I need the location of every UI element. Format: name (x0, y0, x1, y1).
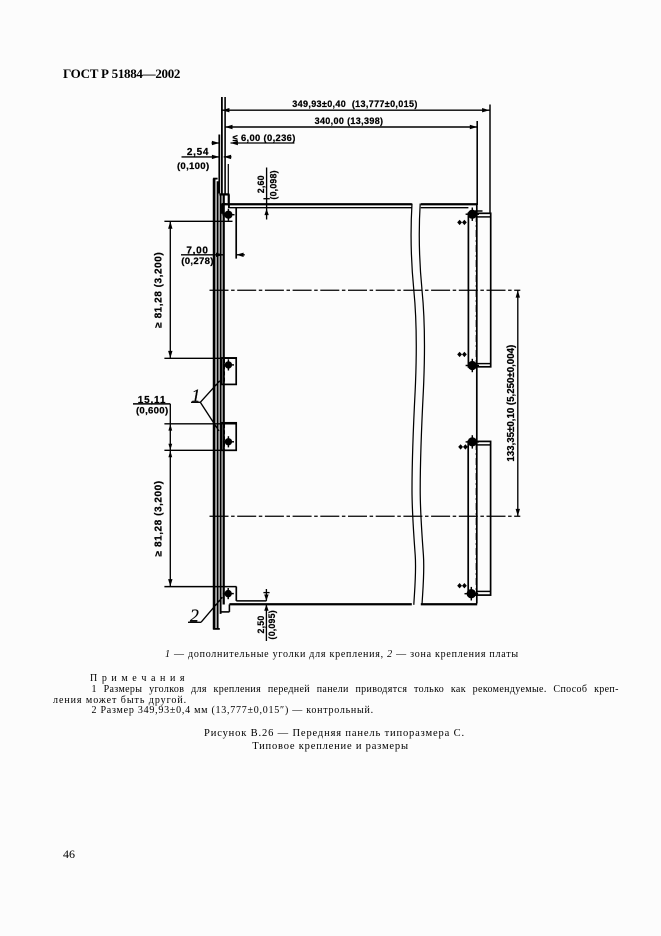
svg-text:(0,100): (0,100) (177, 161, 210, 172)
svg-text:2,54: 2,54 (187, 147, 209, 158)
svg-text:(0,095): (0,095) (267, 610, 277, 639)
svg-text:≥ 81,28 (3,200): ≥ 81,28 (3,200) (154, 252, 165, 328)
svg-text:340,00 (13,398): 340,00 (13,398) (315, 116, 384, 126)
svg-text:7,00: 7,00 (186, 245, 208, 256)
svg-text:≥ 81,28 (3,200): ≥ 81,28 (3,200) (154, 480, 165, 556)
svg-text:≤ 6,00 (0,236): ≤ 6,00 (0,236) (233, 132, 296, 143)
svg-text:(0,600): (0,600) (136, 405, 169, 416)
svg-text:133,35±0,10 (5,250±0,004): 133,35±0,10 (5,250±0,004) (506, 345, 517, 462)
svg-text:(0,098): (0,098) (268, 170, 278, 199)
svg-text:(0,278): (0,278) (181, 256, 214, 267)
svg-text:349,93±0,40 (13,777±0,015): 349,93±0,40 (13,777±0,015) (292, 99, 417, 109)
svg-text:2,50: 2,50 (256, 616, 266, 634)
svg-text:2,60: 2,60 (256, 175, 266, 193)
